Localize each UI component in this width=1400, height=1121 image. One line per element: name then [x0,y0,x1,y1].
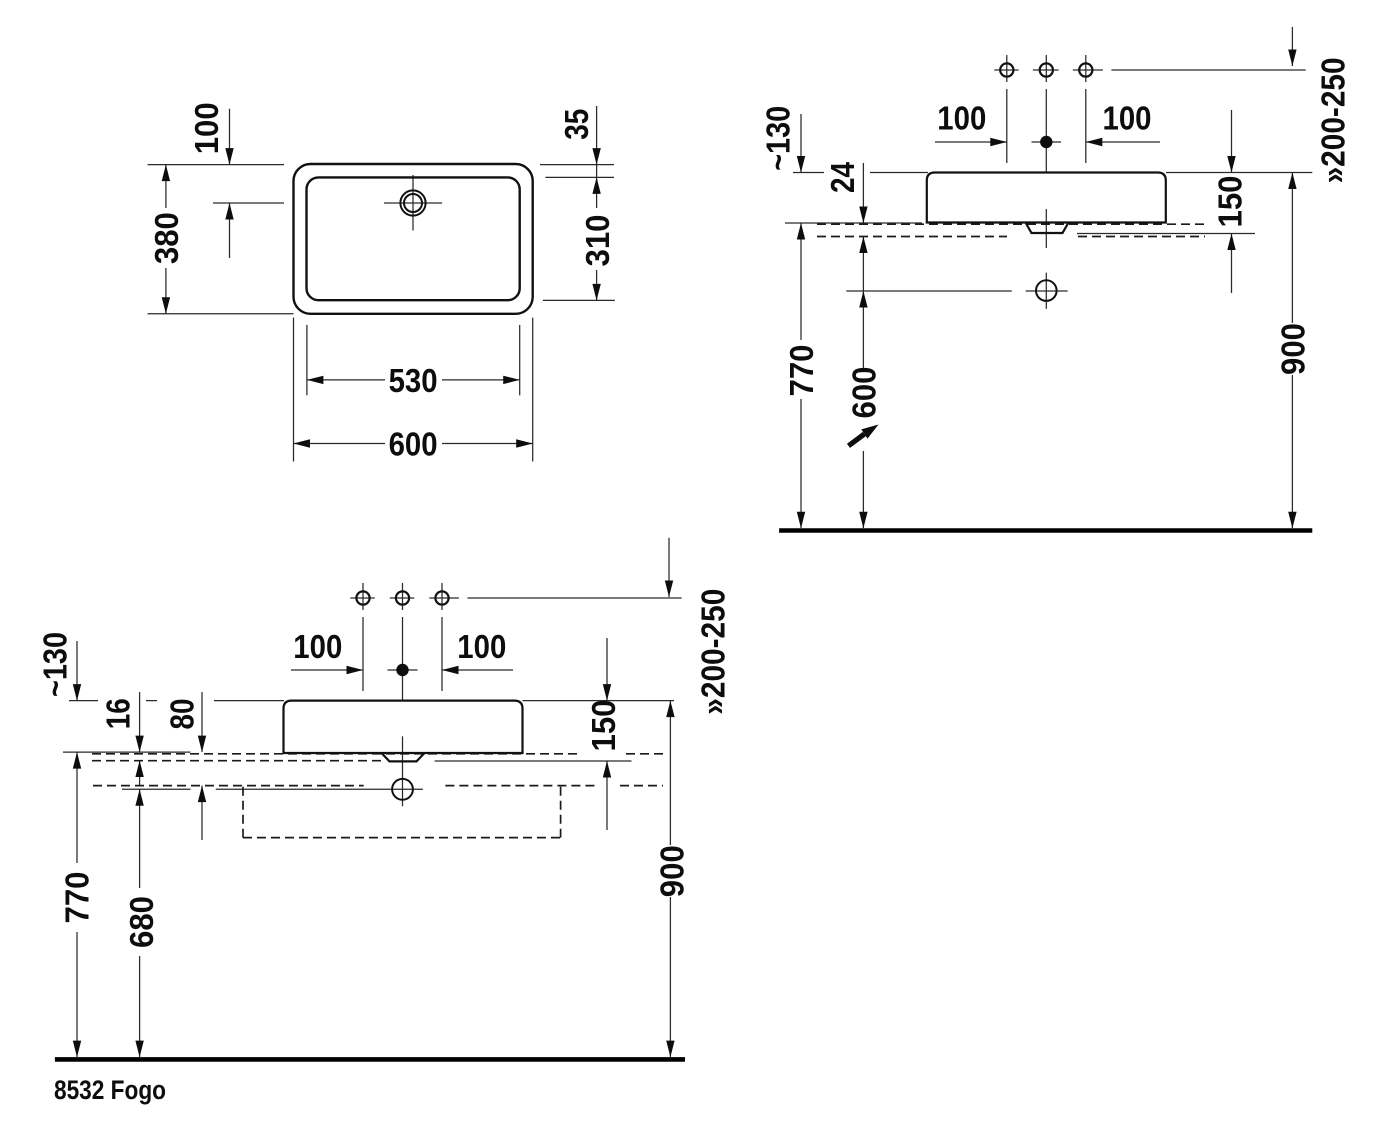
svg-text:900: 900 [1276,323,1313,375]
svg-text:530: 530 [389,363,438,400]
svg-text:»200-250: »200-250 [1316,57,1353,183]
svg-text:100: 100 [189,102,226,154]
svg-text:100: 100 [457,629,506,666]
svg-text:310: 310 [580,215,617,267]
svg-text:~130: ~130 [37,632,74,697]
svg-text:770: 770 [784,345,821,397]
svg-text:680: 680 [124,896,161,948]
svg-text:900: 900 [655,845,692,897]
svg-text:100: 100 [937,101,986,138]
svg-text:»200-250: »200-250 [696,589,733,715]
svg-text:16: 16 [101,698,138,729]
svg-text:380: 380 [149,212,186,264]
svg-text:770: 770 [60,872,97,924]
svg-text:~130: ~130 [760,106,797,171]
svg-text:24: 24 [825,162,862,193]
svg-text:100: 100 [293,629,342,666]
svg-text:600: 600 [389,427,438,464]
svg-text:35: 35 [559,109,596,140]
svg-text:100: 100 [1103,101,1152,138]
svg-text:80: 80 [164,699,201,730]
svg-text:8532 Fogo: 8532 Fogo [54,1075,166,1105]
svg-text:150: 150 [1213,176,1250,228]
svg-text:150: 150 [586,700,623,752]
svg-text:600: 600 [847,367,884,419]
